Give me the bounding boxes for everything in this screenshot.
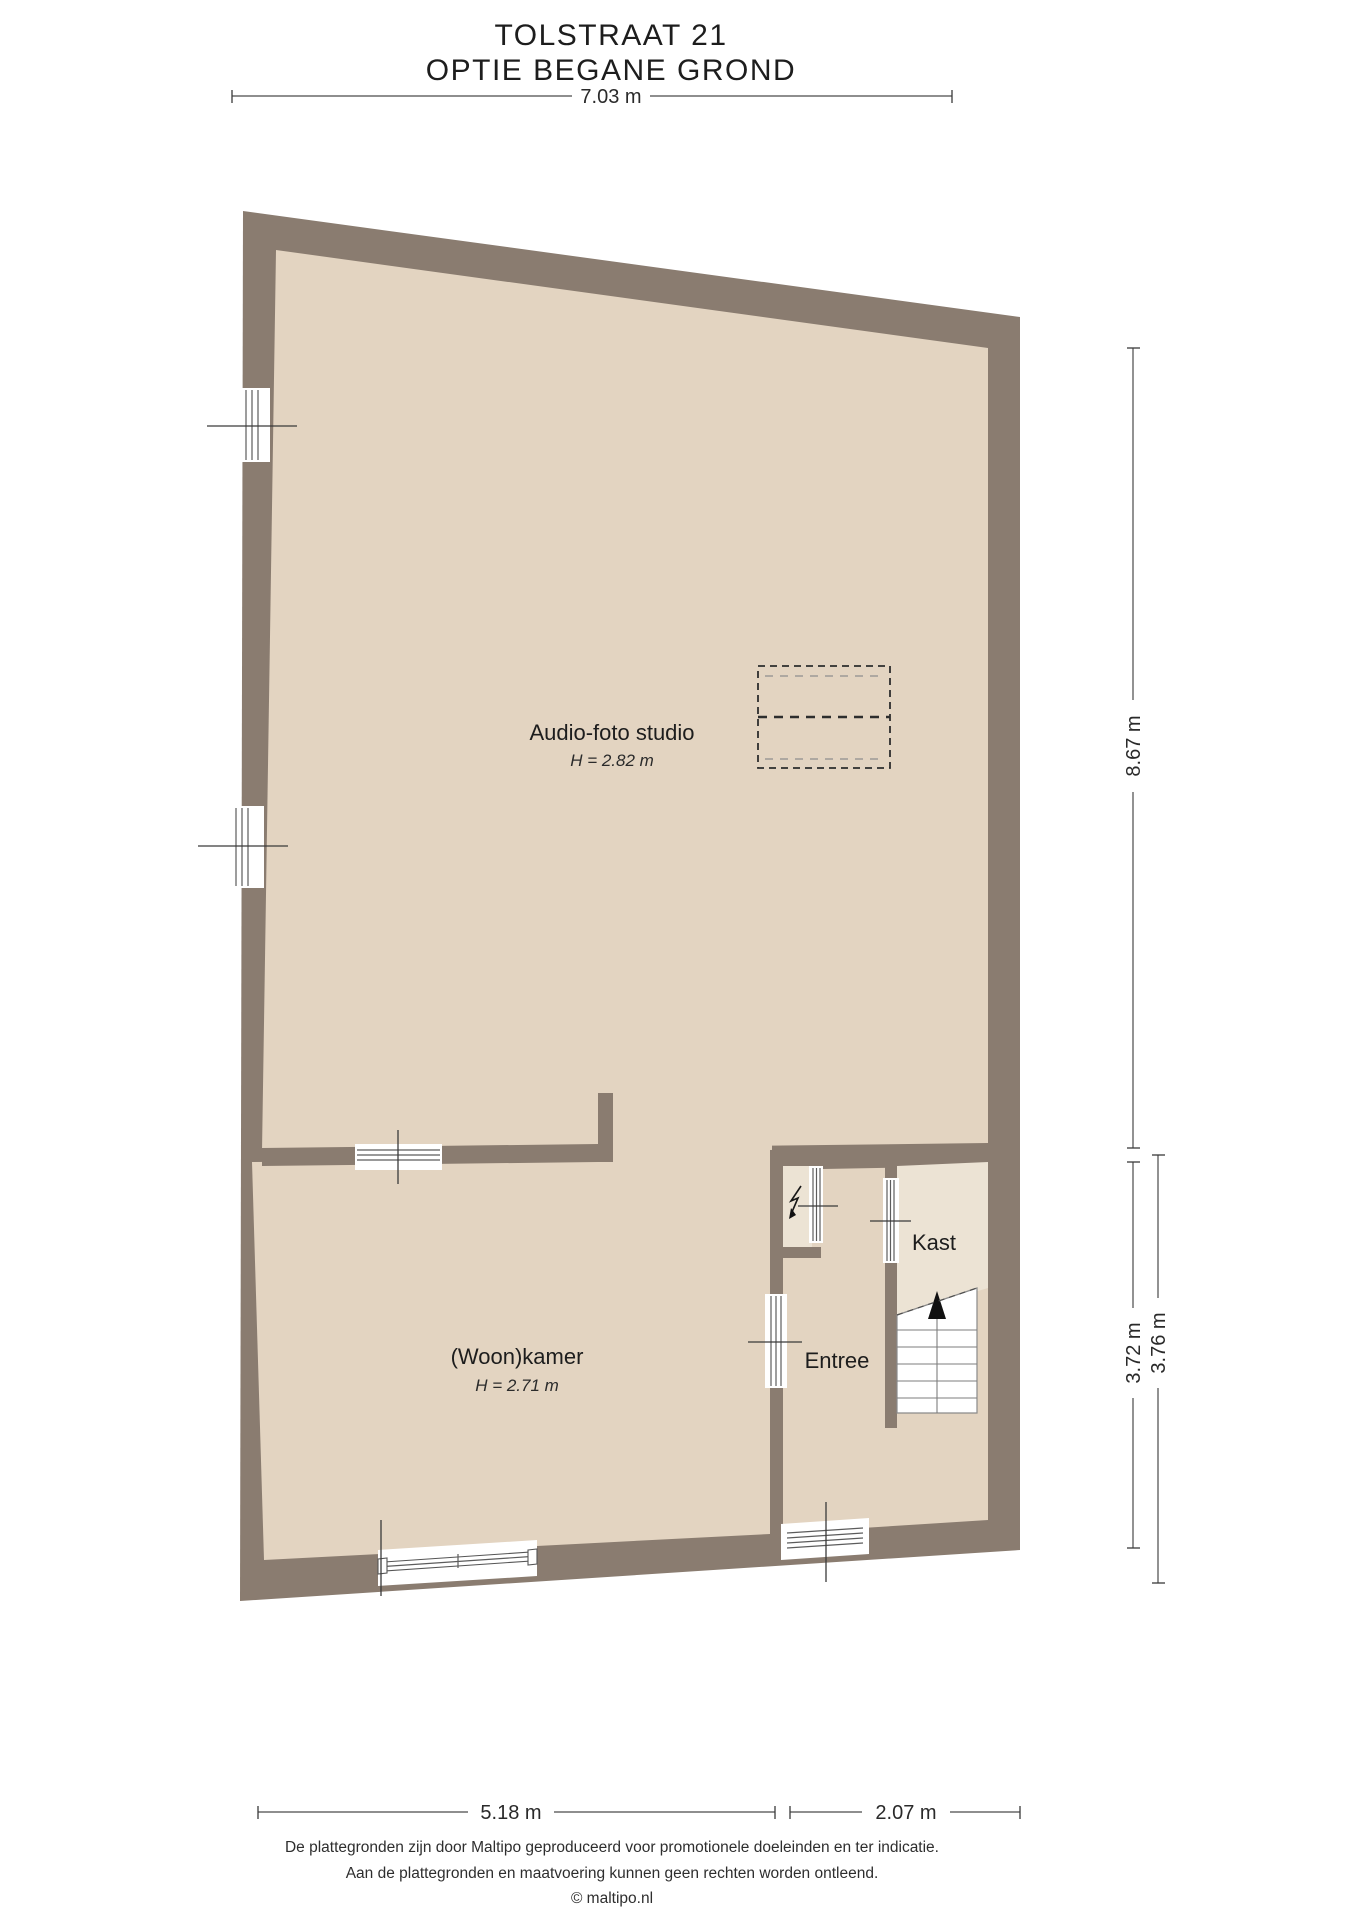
dimension-top: 7.03 m <box>232 86 952 108</box>
footer-line1: De plattegronden zijn door Maltipo gepro… <box>285 1839 939 1856</box>
dimension-right-lower-outer: 3.76 m <box>1148 1155 1170 1583</box>
dimension-top-label: 7.03 m <box>580 86 641 108</box>
label-studio-height: H = 2.82 m <box>570 751 654 770</box>
footer-copyright: © maltipo.nl <box>571 1890 653 1907</box>
dimension-right-lower-outer-label: 3.76 m <box>1148 1312 1170 1373</box>
floor-plan-canvas: TOLSTRAAT 21 OPTIE BEGANE GROND 7.03 m <box>0 0 1358 1920</box>
interior-wall-stub <box>598 1093 613 1162</box>
dimension-bottom-right: 2.07 m <box>790 1802 1020 1824</box>
dimension-right-lower-inner: 3.72 m <box>1123 1162 1145 1548</box>
label-closet: Kast <box>912 1230 956 1255</box>
footer: De plattegronden zijn door Maltipo gepro… <box>285 1839 939 1907</box>
page-subtitle: OPTIE BEGANE GROND <box>426 54 796 87</box>
label-studio: Audio-foto studio <box>529 720 694 745</box>
label-living-height: H = 2.71 m <box>475 1376 559 1395</box>
floor-studio <box>262 250 988 1152</box>
page-title: TOLSTRAAT 21 <box>494 19 727 52</box>
dimension-right-upper: 8.67 m <box>1123 348 1145 1148</box>
interior-wall-meter-closet-bottom <box>770 1247 821 1258</box>
label-living-room: (Woon)kamer <box>451 1344 584 1369</box>
dimension-bottom-right-label: 2.07 m <box>875 1802 936 1824</box>
dimension-bottom-left-label: 5.18 m <box>480 1802 541 1824</box>
floorplan-page: TOLSTRAAT 21 OPTIE BEGANE GROND 7.03 m <box>0 0 1358 1920</box>
dimension-right-upper-label: 8.67 m <box>1123 715 1145 776</box>
dimension-bottom-left: 5.18 m <box>258 1802 775 1824</box>
footer-line2: Aan de plattegronden en maatvoering kunn… <box>346 1865 879 1882</box>
dimension-right-lower-inner-label: 3.72 m <box>1123 1322 1145 1383</box>
label-entry: Entree <box>805 1348 870 1373</box>
